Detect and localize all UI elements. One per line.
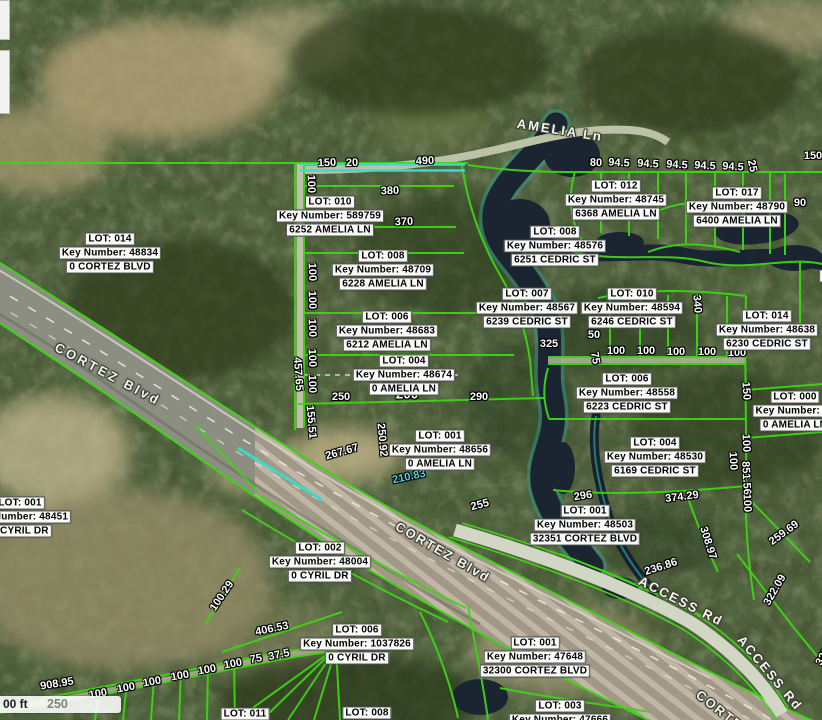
aerial-imagery — [0, 0, 822, 720]
ui-panel-fragment — [0, 0, 10, 40]
scale-bar-label: 00 ft — [3, 697, 28, 711]
ui-panel-fragment — [0, 50, 10, 114]
gis-map-view[interactable]: CORTEZ BlvdCORTEZ BlvdCORTEZ BlvdAMELIA … — [0, 0, 822, 720]
scale-ghost-dim: 250 — [47, 697, 68, 711]
scale-bar: 250 00 ft — [0, 696, 121, 713]
